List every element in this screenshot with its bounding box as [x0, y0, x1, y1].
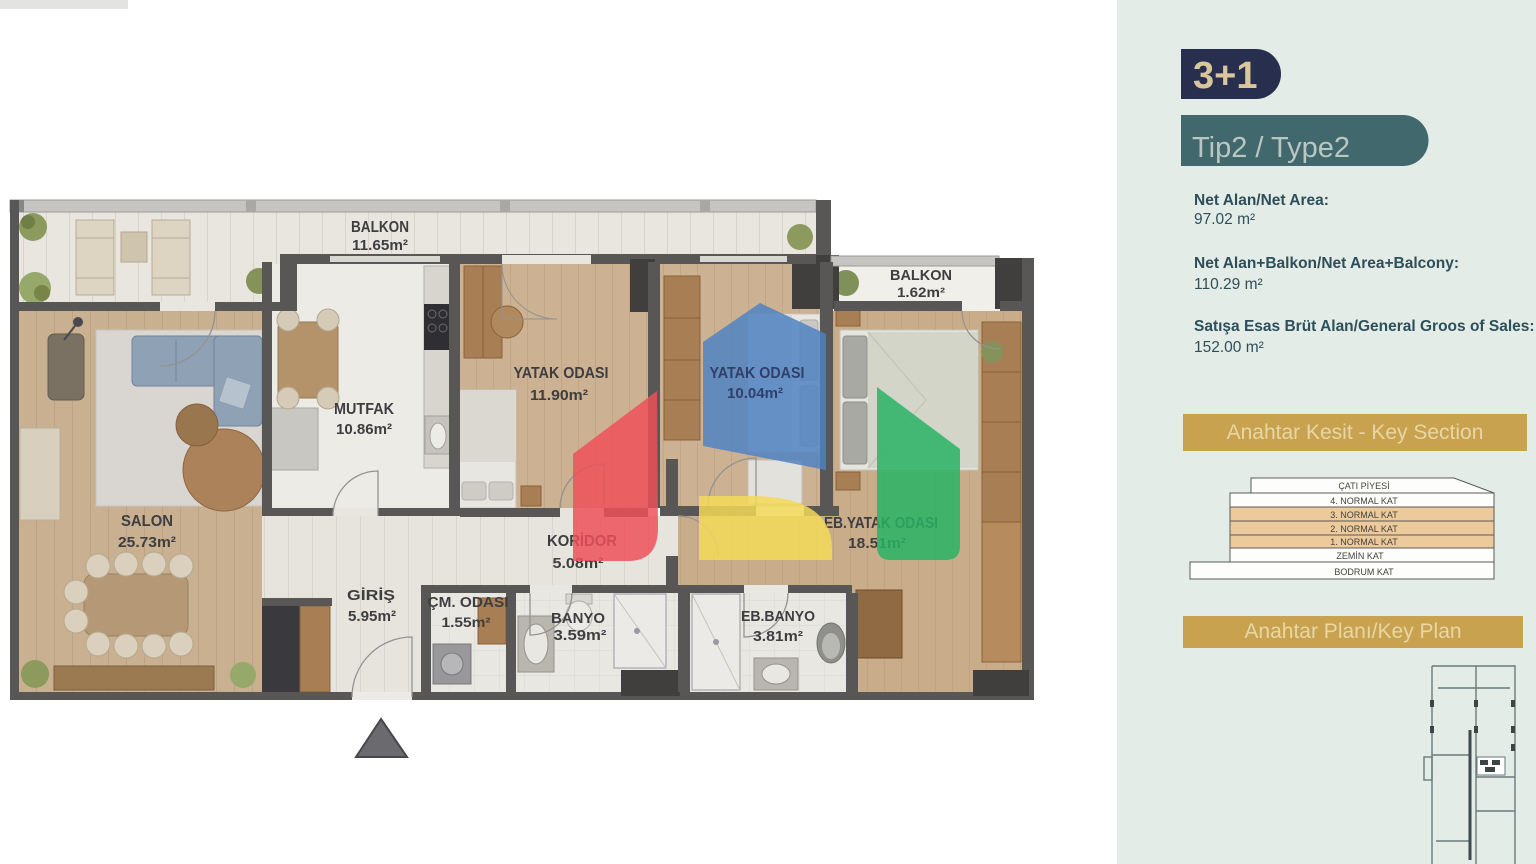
svg-text:YATAK ODASI: YATAK ODASI: [514, 365, 609, 382]
svg-text:3.81m²: 3.81m²: [753, 629, 803, 645]
svg-text:1.62m²: 1.62m²: [897, 284, 945, 300]
svg-text:3. NORMAL KAT: 3. NORMAL KAT: [1330, 510, 1398, 520]
svg-text:Anahtar Kesit - Key Section: Anahtar Kesit - Key Section: [1227, 421, 1484, 444]
svg-text:ZEMİN KAT: ZEMİN KAT: [1336, 551, 1384, 561]
svg-text:Net Alan/Net Area:: Net Alan/Net Area:: [1194, 192, 1329, 209]
svg-text:25.73m²: 25.73m²: [118, 534, 176, 551]
svg-text:BALKON: BALKON: [351, 219, 409, 236]
svg-text:Net Alan+Balkon/Net Area+Balco: Net Alan+Balkon/Net Area+Balcony:: [1194, 255, 1459, 272]
svg-text:3+1: 3+1: [1193, 55, 1257, 97]
svg-text:BALKON: BALKON: [890, 267, 952, 284]
svg-text:GİRİŞ: GİRİŞ: [347, 587, 395, 604]
svg-text:YATAK ODASI: YATAK ODASI: [710, 365, 805, 382]
svg-text:5.95m²: 5.95m²: [348, 608, 396, 625]
svg-text:BODRUM KAT: BODRUM KAT: [1334, 567, 1394, 577]
svg-text:10.86m²: 10.86m²: [336, 421, 392, 438]
svg-text:SALON: SALON: [121, 513, 173, 530]
svg-text:3.59m²: 3.59m²: [554, 628, 607, 644]
svg-text:BANYO: BANYO: [551, 610, 605, 627]
svg-text:ÇATI PİYESİ: ÇATI PİYESİ: [1338, 481, 1389, 491]
svg-text:110.29 m²: 110.29 m²: [1194, 276, 1263, 293]
svg-text:EB.BANYO: EB.BANYO: [741, 608, 815, 625]
svg-text:4. NORMAL KAT: 4. NORMAL KAT: [1330, 496, 1398, 506]
svg-text:11.90m²: 11.90m²: [530, 387, 588, 404]
svg-text:Satışa Esas Brüt Alan/General: Satışa Esas Brüt Alan/General Groos of S…: [1194, 318, 1535, 335]
svg-text:1. NORMAL KAT: 1. NORMAL KAT: [1330, 537, 1398, 547]
svg-text:MUTFAK: MUTFAK: [334, 401, 394, 418]
svg-text:152.00 m²: 152.00 m²: [1194, 339, 1264, 356]
svg-text:10.04m²: 10.04m²: [727, 385, 783, 402]
svg-text:ÇM. ODASI: ÇM. ODASI: [428, 595, 509, 611]
svg-text:97.02 m²: 97.02 m²: [1194, 211, 1255, 228]
svg-text:11.65m²: 11.65m²: [352, 237, 408, 254]
svg-text:Tip2 / Type2: Tip2 / Type2: [1192, 132, 1350, 164]
svg-text:2. NORMAL KAT: 2. NORMAL KAT: [1330, 524, 1398, 534]
svg-text:Anahtar Planı/Key Plan: Anahtar Planı/Key Plan: [1244, 620, 1461, 643]
svg-text:1.55m²: 1.55m²: [442, 614, 491, 630]
